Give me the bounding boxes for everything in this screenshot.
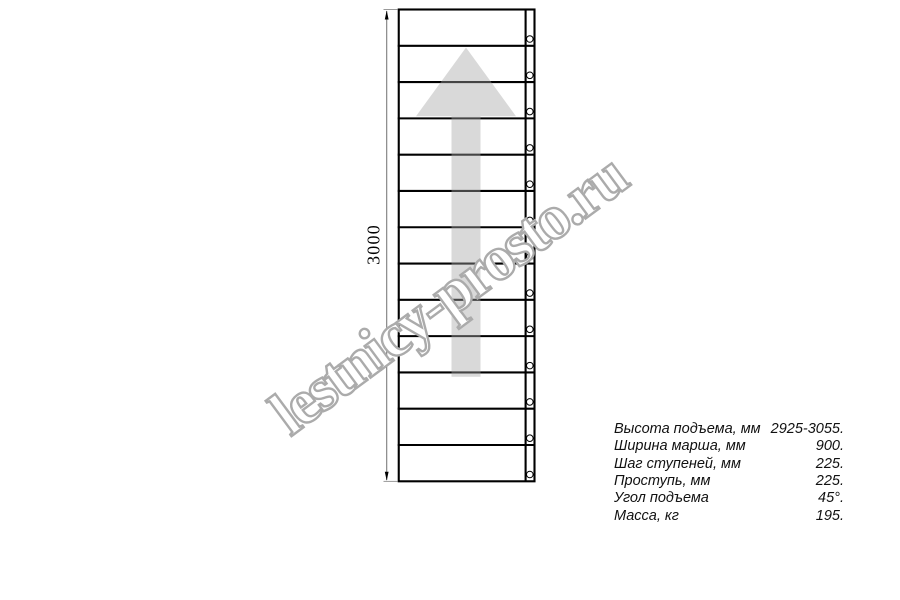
svg-text:3000: 3000 xyxy=(364,224,384,265)
